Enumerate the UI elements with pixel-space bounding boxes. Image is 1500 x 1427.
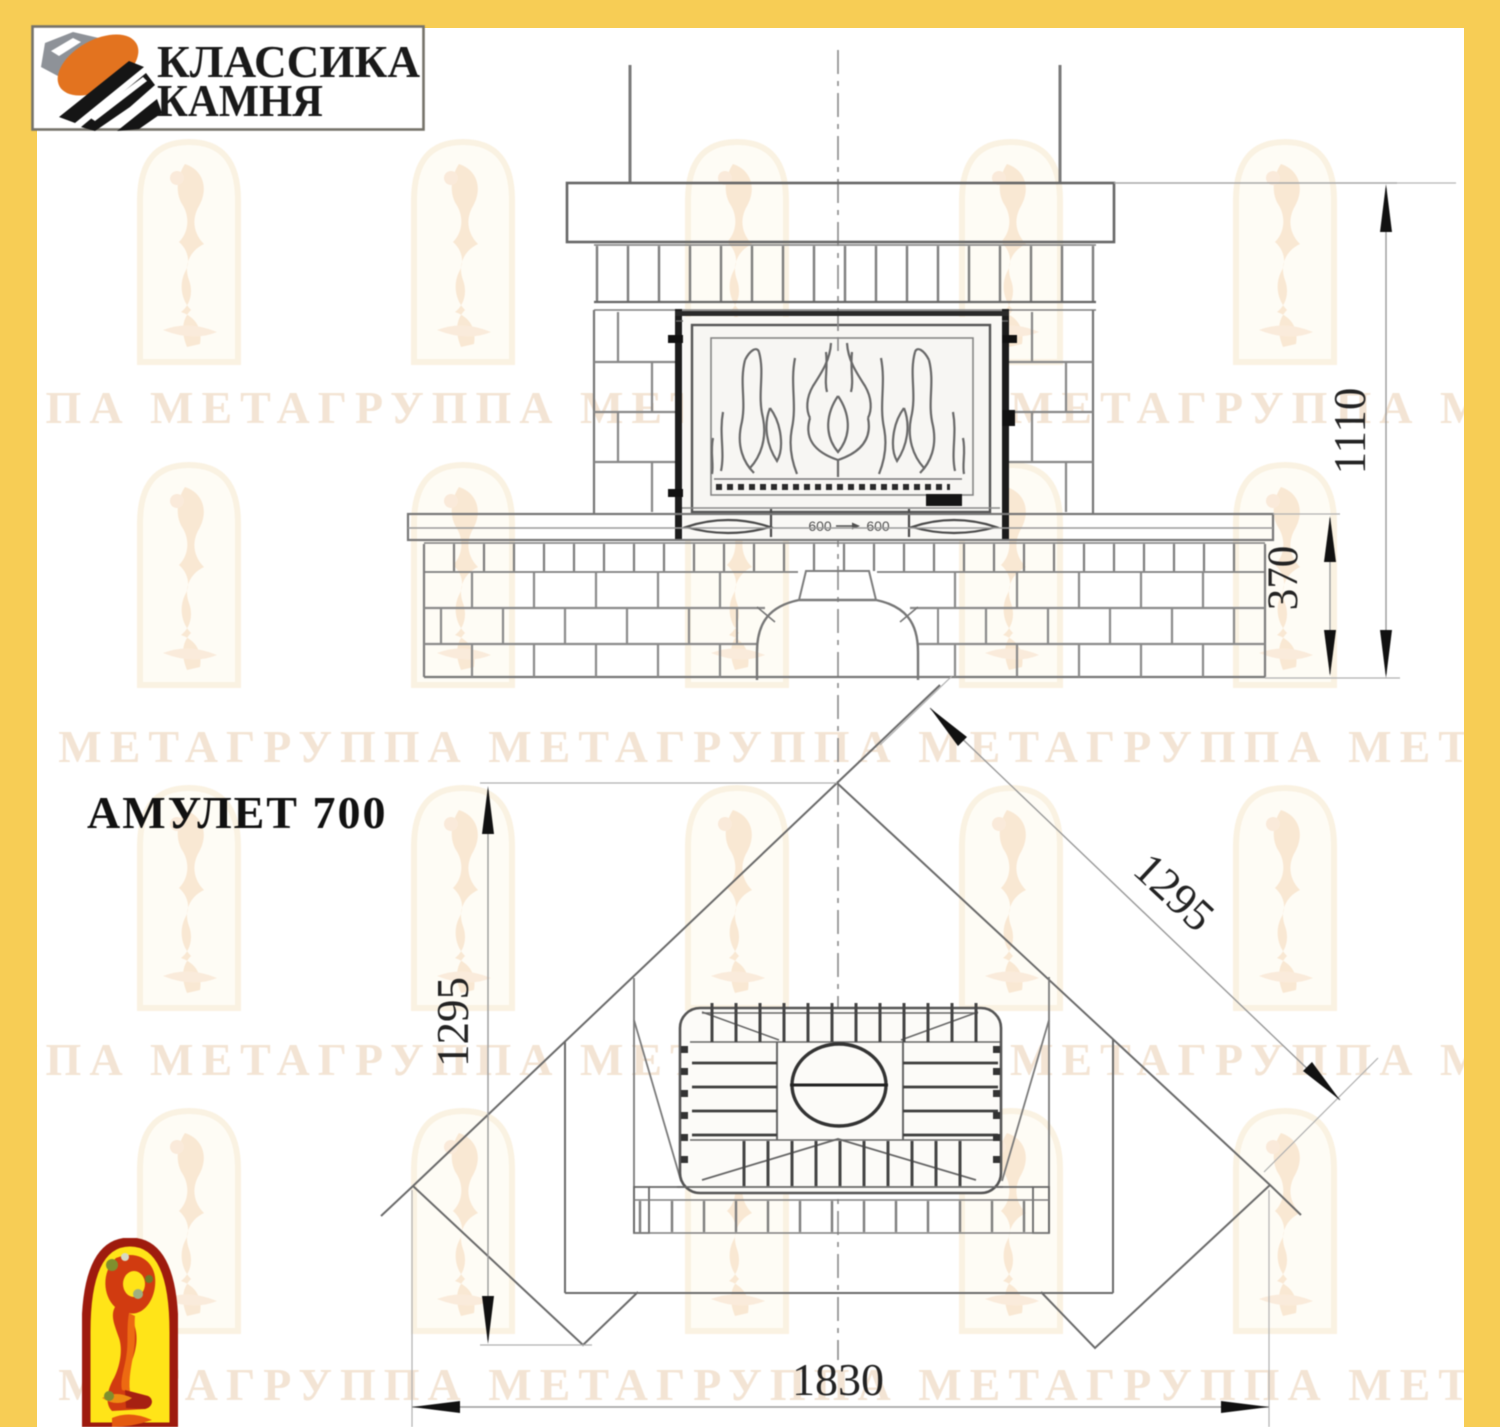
- svg-text:1110: 1110: [1325, 388, 1375, 475]
- svg-text:1295: 1295: [1124, 843, 1224, 941]
- svg-text:ППА МЕТАГРУППА МЕТАГРУППА МЕТА: ППА МЕТАГРУППА МЕТАГРУППА МЕТАГРУППА МЕТ…: [0, 1359, 1500, 1410]
- svg-text:370: 370: [1260, 546, 1307, 611]
- svg-text:АМУЛЕТ 700: АМУЛЕТ 700: [87, 787, 387, 838]
- svg-text:ППА МЕТАГРУППА МЕТАГРУППА МЕТА: ППА МЕТАГРУППА МЕТАГРУППА МЕТАГРУППА МЕТ…: [0, 721, 1500, 772]
- svg-text:1295: 1295: [428, 977, 478, 1067]
- svg-text:600: 600: [866, 518, 890, 534]
- svg-text:600: 600: [808, 518, 832, 534]
- svg-text:КАМНЯ: КАМНЯ: [157, 75, 323, 126]
- svg-text:1830: 1830: [792, 1354, 884, 1405]
